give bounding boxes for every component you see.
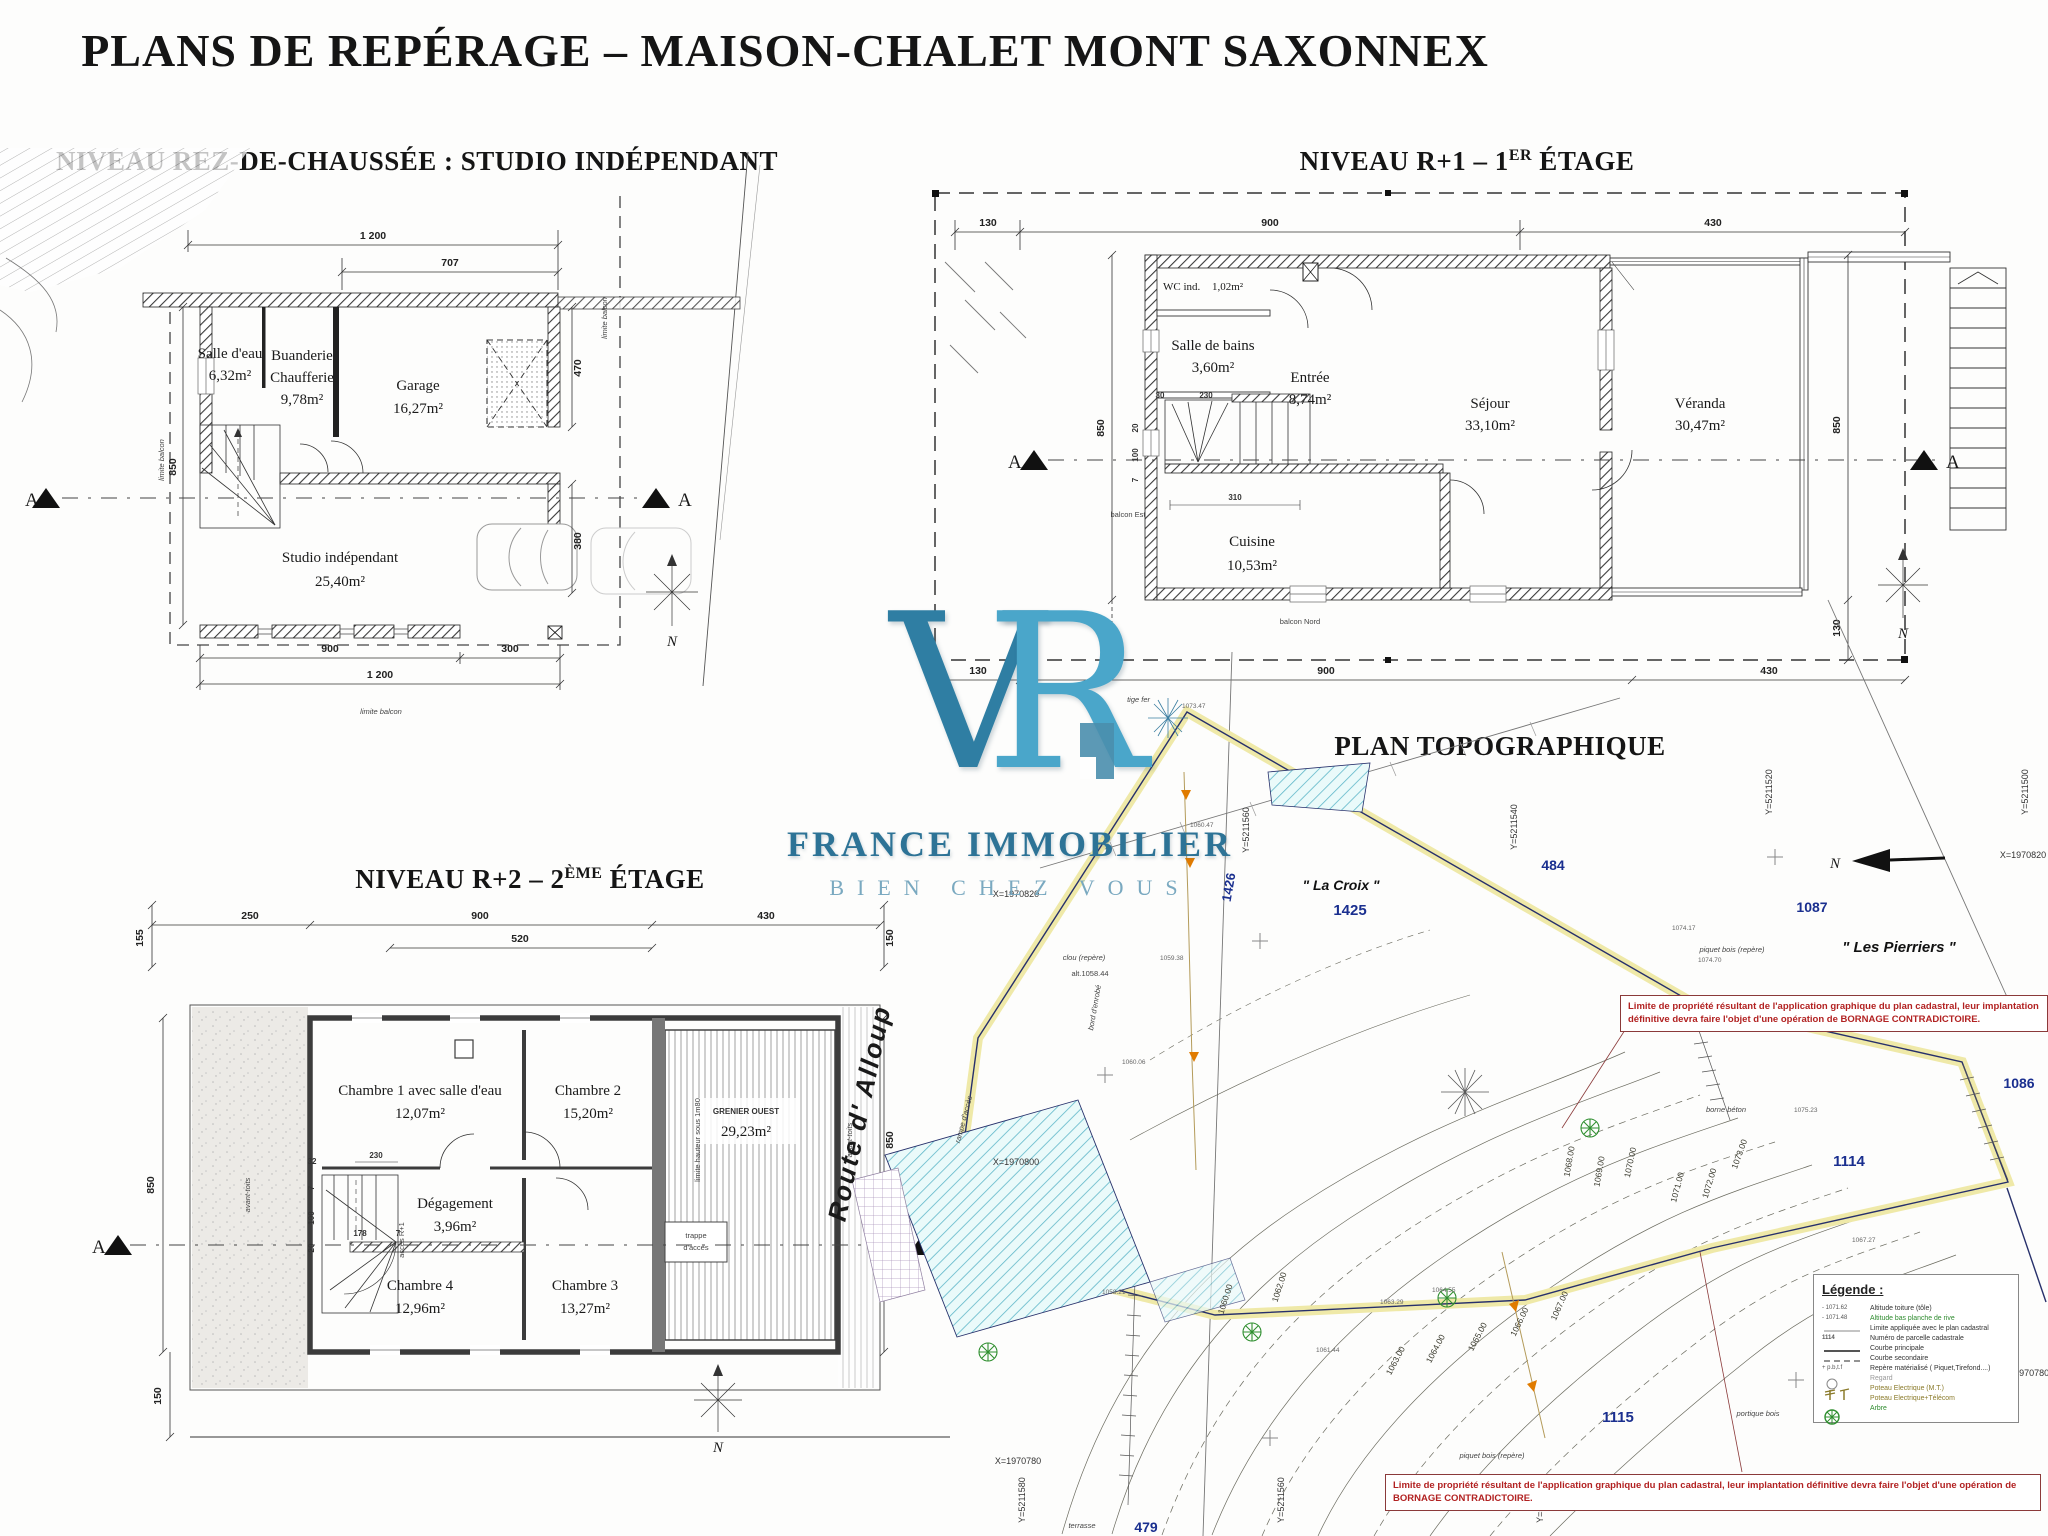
limit-balcony-label: limite balcon [600, 297, 609, 339]
survey-mark-label: terrasse [1068, 1521, 1095, 1530]
dim-label: 300 [501, 643, 519, 655]
dim-label: 20 [1131, 423, 1140, 432]
room-area: 10,53m² [1227, 558, 1277, 574]
spot-elevation: 1073.47 [1182, 703, 1206, 710]
dim-label: 850 [145, 1176, 157, 1194]
topo-buildings [852, 763, 1370, 1337]
survey-mark-label: tige fer [1127, 695, 1150, 704]
dim-label: 430 [757, 910, 775, 922]
contour-label: 1069.00 [1591, 1155, 1606, 1187]
room-area: 3,60m² [1192, 360, 1235, 376]
altitude-eave-symbol: - 1071.48 [1822, 1313, 1870, 1323]
r1-room-labels: WC ind. 1,02m² Salle de bains 3,60m² Ent… [1110, 281, 1725, 626]
rdc-section-line: A A [25, 488, 692, 511]
r1-exterior-stair [1950, 268, 2006, 530]
contour-label: 1065.00 [1466, 1320, 1489, 1352]
altitude-roof-symbol: - 1071.62 [1822, 1303, 1870, 1313]
rdc-room-labels: Salle d'eau 6,32m² Buanderie Chaufferie … [198, 346, 444, 590]
r1-terrain [945, 262, 1026, 373]
grid-y-label: Y=5211500 [2020, 769, 2030, 815]
room-name: Chambre 2 [555, 1083, 621, 1099]
section-marker-a: A [678, 490, 692, 511]
dim-label: 150 [152, 1387, 164, 1405]
room-name: Dégagement [417, 1196, 494, 1212]
spot-elevation: 1074.70 [1698, 957, 1722, 964]
grid-y-label: Y=5211580 [1017, 1477, 1027, 1523]
rdc-terrain [0, 148, 760, 686]
compass-north-label: N [666, 634, 678, 650]
topo-power-lines [1181, 772, 1545, 1438]
spot-elevation: 1060.47 [1190, 822, 1214, 829]
manhole-symbol [1822, 1373, 1870, 1383]
dim-label: 470 [572, 359, 584, 377]
boundary-warning-note: Limite de propriété résultant de l'appli… [1620, 995, 2048, 1032]
legend-label: Altitude toiture (tôle) [1870, 1303, 1990, 1313]
dim-label: 380 [572, 532, 584, 550]
parcel-number: 1115 [1602, 1409, 1634, 1426]
dim-label: 850 [1095, 419, 1107, 437]
room-name: WC ind. [1163, 281, 1201, 293]
dim-label: 7 [396, 1229, 401, 1238]
room-name: Chambre 1 avec salle d'eau [338, 1083, 502, 1099]
rdc-floorplan: 1 200 707 470 380 850 900 300 1 200 limi… [0, 140, 820, 740]
room-name: Entrée [1290, 370, 1329, 386]
legend-label: Repère matérialisé ( Piquet,Tirefond....… [1870, 1363, 1990, 1373]
contour-label: 1072.00 [1700, 1167, 1719, 1200]
dim-label: 850 [1831, 416, 1843, 434]
topo-slope-strips [1119, 1005, 2008, 1505]
grid-y-label: Y=5211560 [1241, 807, 1251, 853]
place-name: " La Croix " [1302, 877, 1379, 893]
grid-y-label: Y=5211540 [1509, 804, 1519, 850]
dim-label: 7 [1131, 477, 1140, 482]
parcel-number: 1426 [1219, 872, 1239, 903]
section-triangle [642, 488, 670, 508]
dim-label: 850 [167, 458, 179, 476]
survey-mark-label: clou (repère) [1063, 953, 1106, 962]
room-area: 3,96m² [434, 1219, 477, 1235]
room-name: Salle d'eau [198, 346, 263, 362]
trap-door-label: trappe [685, 1231, 706, 1240]
room-name: Studio indépendant [282, 550, 399, 566]
r2-title-post: ÉTAGE [602, 864, 704, 894]
parcel-number: 484 [1541, 857, 1565, 873]
parcel-number: 1086 [2003, 1075, 2034, 1091]
room-name: Véranda [1675, 396, 1726, 412]
place-name: " Les Pierriers " [1842, 939, 1956, 956]
spot-elevation: 1074.17 [1672, 925, 1696, 932]
legend-label: Poteau Electrique (M.T.) [1870, 1383, 1990, 1393]
spot-elevation: 1061.44 [1316, 1347, 1340, 1354]
materialized-mark-symbol: + p.b,t.f [1822, 1363, 1870, 1373]
dim-label: 900 [471, 910, 489, 922]
secondary-contour-symbol [1822, 1353, 1870, 1363]
room-area: 9,78m² [281, 392, 324, 408]
parcel-number: 1114 [1833, 1153, 1865, 1170]
section-marker-a: A [92, 1237, 106, 1258]
legend-label: Limite appliquée avec le plan cadastral [1870, 1323, 1990, 1333]
spot-elevation: 1060.06 [1122, 1059, 1146, 1066]
contour-label: 1066.00 [1508, 1305, 1531, 1337]
legend-row: Limite appliquée avec le plan cadastral [1822, 1323, 1990, 1333]
dim-label: 1 200 [360, 230, 386, 242]
dim-label: 32 [308, 1157, 317, 1166]
room-area: 6,32m² [209, 368, 252, 384]
survey-mark-label: bord d'enrobé [1086, 984, 1103, 1031]
legend-label: Arbre [1870, 1403, 1990, 1413]
spot-elevation: 1067.27 [1852, 1237, 1876, 1244]
room-area: 29,23m² [721, 1124, 771, 1140]
legend-row: Courbe principale [1822, 1343, 1990, 1353]
stair-access-label: accès R+1 [397, 1222, 406, 1258]
contour-label: 1071.00 [1668, 1171, 1686, 1204]
room-area: 25,40m² [315, 574, 365, 590]
room-area: 33,10m² [1465, 418, 1515, 434]
page-title: PLANS DE REPÉRAGE – MAISON-CHALET MONT S… [81, 24, 1489, 77]
grid-x-label: X=1970800 [993, 1157, 1039, 1167]
dim-label: 100 [307, 1211, 316, 1225]
room-area: 12,07m² [395, 1106, 445, 1122]
topo-legend: Légende : - 1071.62Altitude toiture (tôl… [1813, 1274, 2019, 1423]
dim-label: 707 [441, 257, 459, 269]
room-area: 1,02m² [1212, 281, 1244, 293]
contour-label: 1068.00 [1561, 1145, 1576, 1177]
cadastral-limit-symbol [1822, 1323, 1870, 1333]
boundary-warning-note: Limite de propriété résultant de l'appli… [1385, 1474, 2041, 1511]
survey-mark-label: alt.1058.44 [1071, 969, 1108, 978]
main-contour-symbol [1822, 1343, 1870, 1353]
topo-parcel-numbers: 1425 1426 484 1087 1086 1114 1115 479 [1134, 857, 2034, 1535]
grid-y-label: Y=5211560 [1276, 1477, 1286, 1523]
contour-label: 1064.00 [1424, 1332, 1447, 1364]
survey-mark-label: portique bois [1736, 1409, 1780, 1418]
room-name: Séjour [1470, 396, 1509, 412]
compass-north-label: N [1829, 856, 1841, 872]
tree-symbol [1822, 1403, 1870, 1413]
limit-balcony-label: limite balcon [157, 439, 166, 481]
contour-label: 1073.00 [1729, 1138, 1749, 1171]
survey-mark-label: piquet bois (repère) [1458, 1451, 1525, 1460]
topo-north-arrow: N [1829, 849, 1945, 872]
room-name: Cuisine [1229, 534, 1275, 550]
section-marker-a: A [1008, 452, 1022, 473]
rdc-walls [143, 293, 740, 639]
legend-row: - 1071.48Altitude bas planche de rive [1822, 1313, 1990, 1323]
room-name: Garage [396, 378, 440, 394]
dim-label: 250 [241, 910, 259, 922]
grid-y-label: Y=5211520 [1764, 769, 1774, 815]
survey-mark-label: borne béton [1706, 1105, 1746, 1114]
rdc-stair [200, 425, 280, 528]
r1-balcony-right [1808, 252, 2006, 530]
r2-plan-title: NIVEAU R+2 – 2ÈME ÉTAGE [355, 864, 704, 895]
spot-elevation: 1075.23 [1794, 1107, 1818, 1114]
spot-elevation: 1064.55 [1432, 1287, 1456, 1294]
dim-label: 1 200 [367, 669, 393, 681]
dim-label: 230 [1199, 391, 1213, 400]
dim-label: 178 [353, 1229, 367, 1238]
dim-label: 155 [134, 929, 146, 947]
legend-row: Regard [1822, 1373, 1990, 1383]
room-area: 30,47m² [1675, 418, 1725, 434]
legend-row: + p.b,t.fRepère matérialisé ( Piquet,Tir… [1822, 1363, 1990, 1373]
room-area: 8,74m² [1289, 392, 1332, 408]
rdc-compass: N [646, 554, 698, 650]
room-area: 15,20m² [563, 1106, 613, 1122]
trap-door-label: d'accès [683, 1243, 708, 1252]
spot-elevation: 1063.29 [1380, 1299, 1404, 1306]
dim-label: 310 [1228, 493, 1242, 502]
dim-label: 900 [1261, 217, 1279, 229]
room-area: 13,27m² [560, 1301, 610, 1317]
limit-balcony-label: limite balcon [360, 707, 402, 716]
contour-label: 1070.00 [1622, 1146, 1638, 1178]
legend-row: Courbe secondaire [1822, 1353, 1990, 1363]
dim-label: 430 [1704, 217, 1722, 229]
dim-label: 230 [369, 1151, 383, 1160]
grid-x-label: X=1970820 [2000, 850, 2046, 860]
eaves-label: avant-toits [243, 1177, 252, 1212]
parcel-number: 1425 [1333, 902, 1366, 919]
section-marker-a: A [1946, 452, 1960, 473]
room-name: Chambre 3 [552, 1278, 618, 1294]
room-name: Chambre 4 [387, 1278, 454, 1294]
topo-place-labels: " La Croix " " Les Pierriers " [1302, 877, 1956, 956]
rdc-doors [300, 441, 363, 473]
survey-mark-label: piquet bois (repère) [1698, 945, 1765, 954]
topo-survey-stars [1148, 698, 1489, 1116]
compass-north-label: N [712, 1440, 724, 1456]
legend-label: Courbe principale [1870, 1343, 1990, 1353]
page: PLANS DE REPÉRAGE – MAISON-CHALET MONT S… [0, 0, 2048, 1536]
dim-label: 900 [321, 643, 339, 655]
r2-title-pre: NIVEAU R+2 – 2 [355, 864, 564, 894]
parcel-number: 1087 [1796, 899, 1827, 915]
section-triangle [104, 1235, 132, 1255]
topo-grid-crosses [1097, 849, 1804, 1446]
r1-doors [1270, 262, 1634, 514]
dim-label: 7 [307, 1185, 316, 1190]
room-name: Buanderie [271, 348, 333, 364]
parcel-number: 479 [1134, 1519, 1158, 1535]
height-limit-label: limite hauteur sous 1m80 [693, 1098, 702, 1182]
r2-compass: N [694, 1364, 742, 1456]
legend-row: - 1071.62Altitude toiture (tôle) [1822, 1303, 1990, 1313]
parcel-number-symbol: 1114 [1822, 1333, 1870, 1343]
grid-x-label: X=1970820 [993, 889, 1039, 899]
contour-label: 1062.00 [1270, 1271, 1289, 1304]
room-name: Chaufferie [270, 370, 334, 386]
room-name: GRENIER OUEST [713, 1107, 779, 1116]
room-area: 12,96m² [395, 1301, 445, 1317]
legend-title: Légende : [1822, 1282, 2010, 1297]
room-area: 16,27m² [393, 401, 443, 417]
r2-title-sup: ÈME [564, 865, 602, 882]
dim-label: 30 [1156, 391, 1165, 400]
legend-label: Regard [1870, 1373, 1990, 1383]
legend-label: Courbe secondaire [1870, 1353, 1990, 1363]
section-triangle [1020, 450, 1048, 470]
legend-label: Altitude bas planche de rive [1870, 1313, 1990, 1323]
balcony-east-label: balcon Est [1110, 510, 1146, 519]
spot-elevation: 1058.21 [1102, 1289, 1126, 1296]
rdc-skylight [487, 340, 547, 427]
grid-x-label: X=1970780 [995, 1456, 1041, 1466]
room-name: Salle de bains [1171, 338, 1254, 354]
r2-trap-door: trappe d'accès [665, 1222, 727, 1262]
legend-label: Numéro de parcelle cadastrale [1870, 1333, 1990, 1343]
legend-label: Poteau Electrique+Télécom [1870, 1393, 1990, 1403]
dim-label: 130 [979, 217, 997, 229]
rdc-car [477, 524, 691, 594]
legend-row: 1114Numéro de parcelle cadastrale [1822, 1333, 1990, 1343]
spot-elevation: 1059.38 [1160, 955, 1184, 962]
legend-row: Arbre [1822, 1403, 1990, 1413]
dim-label: 20 [307, 1243, 316, 1252]
dim-label: 520 [511, 933, 529, 945]
